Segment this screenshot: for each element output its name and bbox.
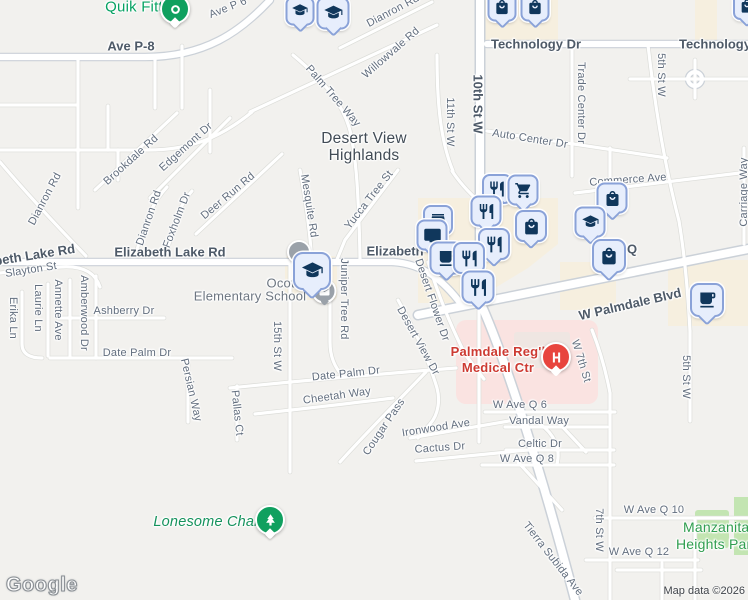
shopping-bag-icon <box>522 217 541 236</box>
grocery-poi-marker[interactable] <box>508 175 539 206</box>
road-label-w-ave-q-10: W Ave Q 10 <box>624 504 685 516</box>
shopping-bag-icon <box>599 246 619 266</box>
road-label-annette-ave: Annette Ave <box>52 279 64 340</box>
store-poi-marker[interactable] <box>733 0 748 20</box>
shopping-bag-icon <box>739 0 748 14</box>
road-label-ave-p-8: Ave P-8 <box>107 39 154 54</box>
lonesome-chair-marker[interactable] <box>255 505 285 535</box>
shopping-bag-icon <box>494 0 511 16</box>
road-label-celtic-dr: Celtic Dr <box>518 438 562 450</box>
road-label-carriage-way: Carriage Way <box>738 157 748 226</box>
restaurant-icon <box>460 249 479 268</box>
ocotillo-school-marker[interactable] <box>293 252 331 290</box>
road-label-11th-st-w: 11th St W <box>444 97 456 146</box>
graduation-cap-icon <box>301 260 324 283</box>
restaurant-poi-marker[interactable] <box>471 196 502 227</box>
road-label-7th-st-w: 7th St W <box>593 508 605 552</box>
road-label-5th-st-w: 5th St W <box>655 53 667 97</box>
restaurant-icon <box>485 235 504 254</box>
road-label-5th-st-w: 5th St W <box>680 355 692 399</box>
graduation-cap-icon <box>323 3 343 23</box>
restaurant-poi-marker[interactable] <box>462 271 495 304</box>
area-label-desert-view-highlands: Desert View Highlands <box>321 130 406 164</box>
map-attribution: Map data ©2026 <box>664 585 746 597</box>
road-label-amberwood-dr: Amberwood Dr <box>78 275 90 351</box>
road-label-elizabeth: Elizabeth <box>366 244 423 259</box>
area-label-line2: Highlands <box>321 147 406 164</box>
road-label-15th-st-w: 15th St W <box>271 321 283 371</box>
ring-icon <box>168 2 183 17</box>
graduation-cap-icon <box>581 213 599 231</box>
tree-icon <box>263 513 278 528</box>
road-label-ashberry-dr: Ashberry Dr <box>94 305 155 317</box>
school-poi-marker[interactable] <box>317 0 350 30</box>
hospital-marker[interactable] <box>541 342 571 372</box>
map-canvas[interactable]: Quik Fitt Desert View Highlands Ocotillo… <box>0 0 748 600</box>
shopping-bag-icon <box>603 189 621 207</box>
road-label-10th-st-w: 10th St W <box>471 74 486 133</box>
road-label-erika-ln: Erika Ln <box>7 297 19 339</box>
school-poi-marker[interactable] <box>286 0 315 26</box>
shopping-bag-icon <box>527 0 544 16</box>
restaurant-icon <box>477 202 495 220</box>
restaurant-icon <box>468 277 488 297</box>
road-label-juniper-tree-rd: Juniper Tree Rd <box>338 258 350 339</box>
road-label-vandal-way: Vandal Way <box>509 415 569 427</box>
road-label-q: Q <box>627 242 637 257</box>
park-label-line2: Heights Park <box>676 536 748 553</box>
hospital-label[interactable]: Palmdale Reg'l Medical Ctr <box>451 344 546 376</box>
school-poi-marker[interactable] <box>575 207 606 238</box>
road-label-elizabeth-lake-rd: Elizabeth Lake Rd <box>114 245 225 260</box>
hospital-label-line1: Palmdale Reg'l <box>451 344 546 360</box>
poi-label-lonesome-chair[interactable]: Lonesome Chair <box>153 514 262 530</box>
school-label-line2[interactable]: Elementary School <box>194 289 307 304</box>
store-poi-marker[interactable] <box>515 210 547 242</box>
road-label-date-palm-dr: Date Palm Dr <box>103 347 171 359</box>
quik-fitt-marker[interactable] <box>160 0 190 24</box>
road-label-w-ave-q-12: W Ave Q 12 <box>609 546 670 558</box>
area-label-line1: Desert View <box>321 130 406 147</box>
store-poi-marker[interactable] <box>521 0 550 22</box>
road-label-trade-center-dr: Trade Center Dr <box>575 62 587 144</box>
park-label[interactable]: Manzanita Heights Park <box>676 519 748 553</box>
road-label-technology-dr: Technology Dr <box>491 37 581 52</box>
hospital-h-icon <box>549 350 564 365</box>
cafe-icon <box>697 290 717 310</box>
road-label-w-ave-q-6: W Ave Q 6 <box>493 399 547 411</box>
road-label-w-ave-q-8: W Ave Q 8 <box>500 453 554 465</box>
store-poi-marker[interactable] <box>488 0 517 22</box>
road-label-technology-dr: Technology Dr <box>679 37 748 52</box>
poi-label-quik-fitt[interactable]: Quik Fitt <box>105 0 163 16</box>
road-label-laurie-ln: Laurie Ln <box>32 284 44 332</box>
store-poi-marker[interactable] <box>592 239 626 273</box>
park-label-line1: Manzanita <box>683 519 748 536</box>
restaurant-poi-marker[interactable] <box>453 242 485 274</box>
hospital-label-line2: Medical Ctr <box>451 360 546 376</box>
google-logo[interactable]: Google <box>6 574 78 597</box>
graduation-cap-icon <box>292 3 309 20</box>
shopping-cart-icon <box>514 181 532 199</box>
cafe-poi-marker[interactable] <box>690 283 724 317</box>
